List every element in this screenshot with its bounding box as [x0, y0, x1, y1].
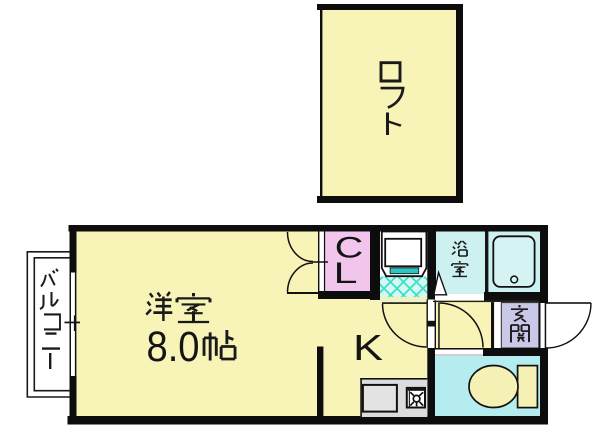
svg-text:8.0: 8.0	[147, 323, 200, 371]
svg-text:L: L	[334, 257, 358, 290]
svg-text:K: K	[353, 327, 383, 368]
